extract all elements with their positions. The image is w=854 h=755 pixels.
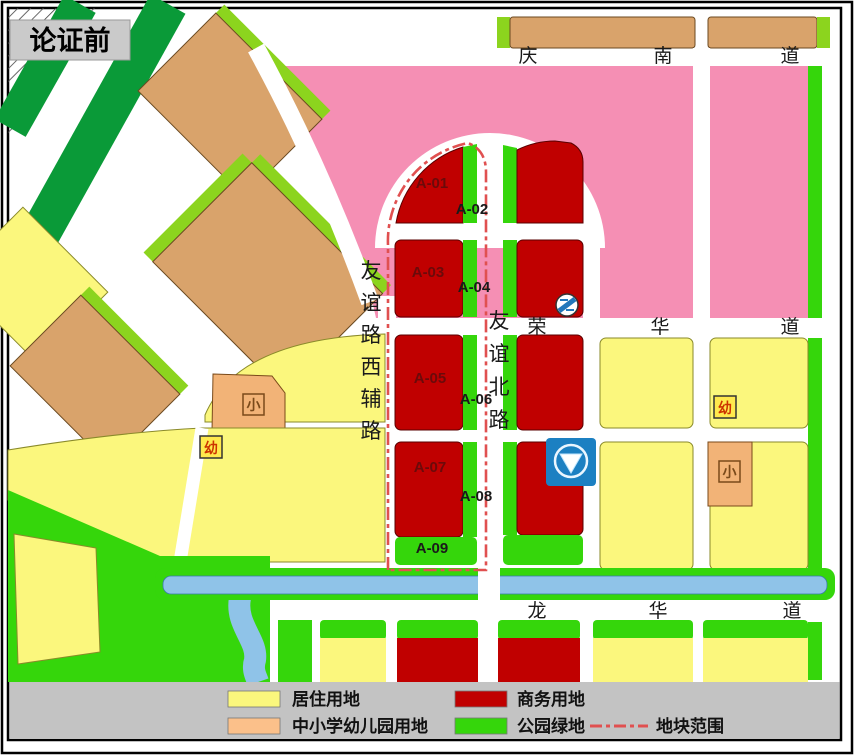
road-name-char: 华 <box>650 316 669 338</box>
park-edge-strip <box>808 338 822 600</box>
business-block <box>498 638 580 682</box>
vertical-road <box>693 48 710 338</box>
kindergarten-marker: 幼 <box>718 400 732 416</box>
business-block <box>517 141 583 223</box>
legend-label-park: 公园绿地 <box>517 716 585 736</box>
plot-label: A-07 <box>414 459 447 476</box>
green-strip <box>397 620 478 640</box>
road-name-char: 华 <box>648 600 667 622</box>
park-block <box>278 620 312 682</box>
business-block <box>517 335 583 430</box>
park-edge-strip <box>808 66 822 318</box>
plot-label: A-05 <box>414 370 447 387</box>
road-name-char: 路 <box>489 409 510 432</box>
green-strip <box>593 620 693 640</box>
legend-label-school: 中小学幼儿园用地 <box>292 716 428 736</box>
yellow-block <box>320 638 386 682</box>
planning-map-page: A-01 A-02 A-03 A-04 A-05 A-06 A-07 A-08 … <box>0 0 854 755</box>
business-block <box>397 638 478 682</box>
tan-block <box>510 17 695 48</box>
road-name-char: 龙 <box>527 600 546 622</box>
plot-label: A-06 <box>460 391 493 408</box>
plot-label: A-08 <box>460 488 493 505</box>
yellow-block <box>14 534 100 664</box>
plot-label: A-09 <box>416 540 449 557</box>
green-strip <box>817 17 830 48</box>
road-name-char: 路 <box>361 420 382 443</box>
road-name-char: 道 <box>780 45 799 67</box>
plot-A-07 <box>395 442 463 537</box>
road-name-char: 辅 <box>361 388 382 411</box>
road-name-char: 路 <box>361 324 382 347</box>
plot-label: A-01 <box>416 175 449 192</box>
page-title: 论证前 <box>30 25 111 56</box>
north-school-row <box>497 17 830 48</box>
south-row <box>278 620 808 682</box>
green-strip <box>498 620 580 640</box>
yellow-block <box>703 638 808 682</box>
green-strip <box>320 620 386 640</box>
road-name-char: 荣 <box>527 316 546 338</box>
road-name-char: 谊 <box>361 292 382 315</box>
road-name-char: 南 <box>653 45 672 67</box>
yellow-block <box>593 638 693 682</box>
road-name-char: 友 <box>489 310 510 333</box>
legend-swatch-school <box>228 718 280 734</box>
plot-label: A-04 <box>458 279 491 296</box>
green-strip <box>463 335 477 430</box>
plot-label: A-03 <box>412 264 445 281</box>
yellow-block <box>600 442 693 570</box>
park-edge-strip <box>808 622 822 680</box>
road-name-char: 北 <box>489 376 510 399</box>
school-marker: 小 <box>247 397 261 413</box>
green-strip <box>503 145 517 223</box>
green-strip <box>503 535 583 565</box>
plot-label: A-02 <box>456 201 489 218</box>
school-marker: 小 <box>723 464 737 480</box>
green-strip <box>503 240 517 317</box>
title-plate: 论证前 <box>10 20 130 60</box>
tan-block <box>708 17 817 48</box>
kindergarten-marker: 幼 <box>204 440 218 456</box>
road-name-char: 友 <box>361 260 382 283</box>
vertical-road <box>583 230 600 620</box>
green-strip <box>497 17 510 48</box>
road-name-char: 庆 <box>518 45 537 67</box>
green-strip <box>503 442 517 535</box>
yellow-block <box>600 338 693 428</box>
legend-swatch-residential <box>228 691 280 707</box>
business-east-column <box>503 141 583 565</box>
legend-label-boundary: 地块范围 <box>656 716 724 736</box>
legend-label-residential: 居住用地 <box>292 689 360 709</box>
road-name-char: 道 <box>782 600 801 622</box>
green-strip <box>703 620 808 640</box>
river <box>155 564 835 604</box>
metro-station-icon <box>546 438 596 486</box>
road-crossing-badge-icon <box>556 294 578 316</box>
road-name-char: 谊 <box>489 343 510 366</box>
road-name-char: 道 <box>780 316 799 338</box>
legend-swatch-business <box>455 691 507 707</box>
legend-swatch-park <box>455 718 507 734</box>
road-name-char: 西 <box>361 356 382 379</box>
land-use-map: A-01 A-02 A-03 A-04 A-05 A-06 A-07 A-08 … <box>0 0 854 755</box>
legend: 居住用地 中小学幼儿园用地 商务用地 公园绿地 地块范围 <box>10 682 840 739</box>
legend-label-business: 商务用地 <box>517 689 585 709</box>
